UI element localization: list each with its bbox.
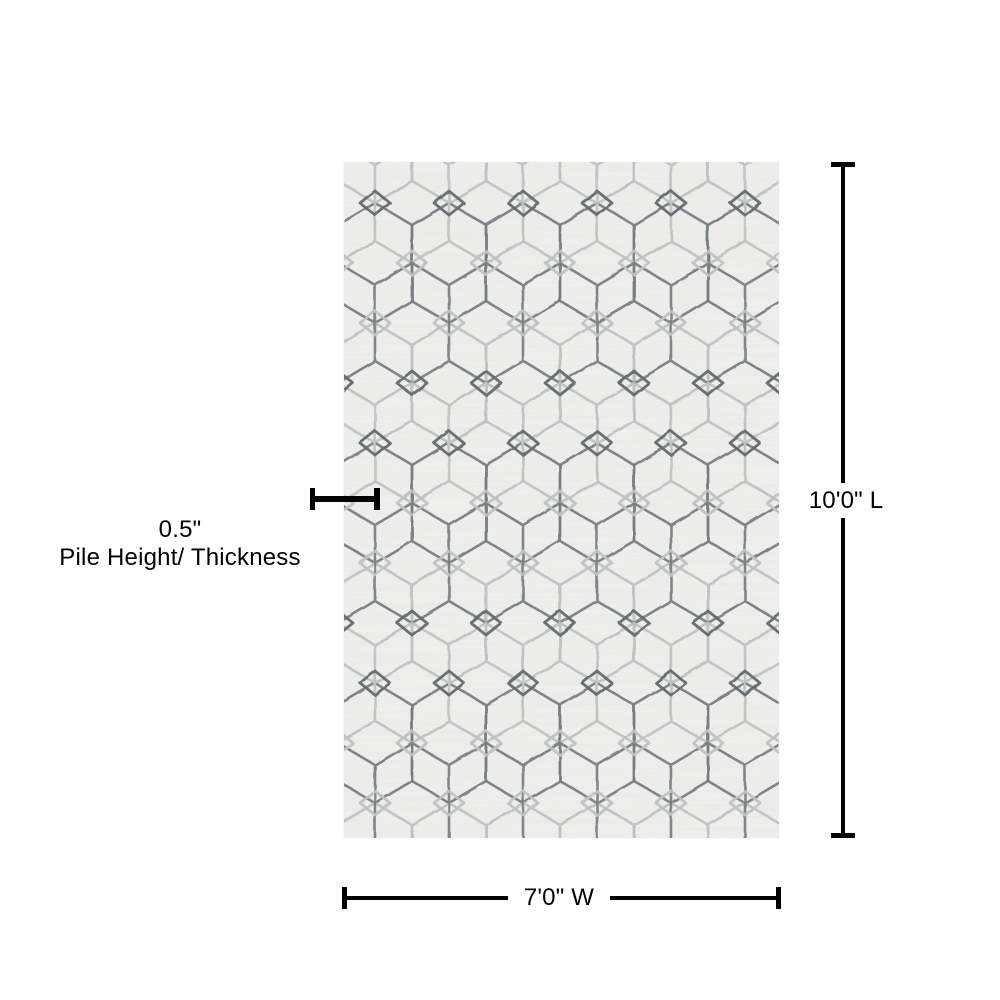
pile-height-caption: Pile Height/ Thickness bbox=[20, 544, 340, 572]
length-label: 10'0" L bbox=[776, 487, 916, 515]
width-dimension-cap-right bbox=[776, 887, 781, 909]
product-diagram: 10'0" L 7'0" W 0.5" Pile Height/ Thickne… bbox=[0, 0, 1000, 1000]
length-dimension-line-lower bbox=[841, 518, 845, 834]
pile-height-label: 0.5" Pile Height/ Thickness bbox=[20, 516, 340, 572]
width-label: 7'0" W bbox=[494, 884, 624, 912]
length-dimension-cap-bottom bbox=[831, 833, 855, 838]
length-dimension-line-upper bbox=[841, 162, 845, 483]
pile-marker-line bbox=[310, 496, 380, 502]
width-dimension-line-right bbox=[610, 896, 776, 900]
pile-height-value: 0.5" bbox=[20, 516, 340, 544]
width-dimension-line-left bbox=[347, 896, 508, 900]
pile-marker-cap-right bbox=[374, 488, 380, 510]
rug-image bbox=[344, 162, 779, 838]
hex-trellis-pattern bbox=[344, 162, 779, 838]
